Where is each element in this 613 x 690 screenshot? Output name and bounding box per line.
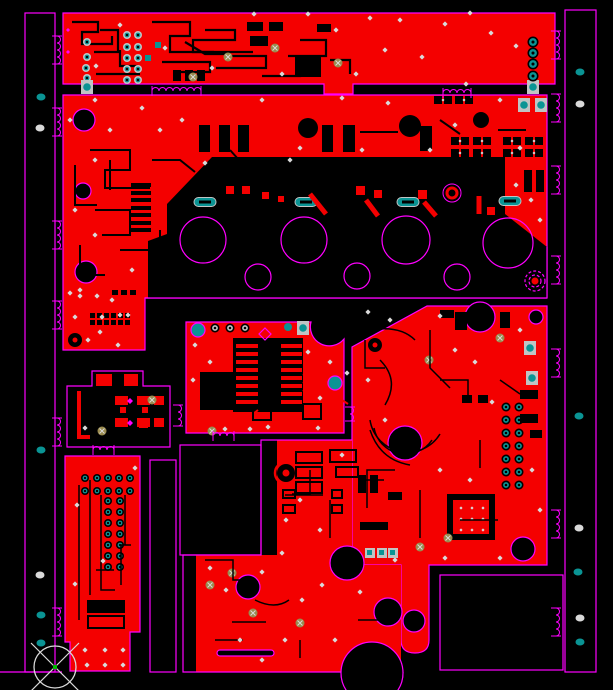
component — [370, 475, 378, 493]
through-hole-pad — [86, 56, 88, 58]
ic-pads — [176, 240, 196, 244]
resistor-footprint — [461, 137, 469, 145]
copper-pad — [142, 407, 148, 413]
resistor-footprint — [503, 149, 511, 157]
panel-tab-coil — [152, 88, 201, 91]
copper-pad — [374, 190, 382, 198]
ic-pads — [131, 221, 151, 225]
resistor-footprint — [451, 149, 459, 157]
fiducial-center — [532, 278, 539, 285]
mounting-hole — [73, 109, 95, 131]
through-hole-pad — [137, 57, 139, 59]
ic-pads — [131, 191, 151, 195]
plated-hole — [328, 376, 342, 390]
connector-pad — [129, 490, 131, 492]
ic-pin — [281, 392, 302, 396]
panel-tab-coil — [556, 31, 560, 59]
connector-pad — [119, 500, 121, 502]
panel-tab-coil — [556, 510, 560, 538]
smd-pad — [155, 42, 161, 48]
resistor-footprint — [473, 149, 481, 157]
through-hole-pad — [137, 79, 139, 81]
component — [90, 313, 95, 318]
connector-pad — [84, 477, 86, 479]
resistor-footprint — [455, 96, 463, 104]
component — [388, 492, 402, 500]
copper-pad — [120, 407, 126, 413]
smd-pad — [145, 55, 151, 61]
component — [399, 115, 421, 137]
pin1-pad — [529, 83, 537, 91]
hole — [388, 426, 422, 460]
via — [365, 309, 370, 314]
through-hole-pad — [86, 77, 88, 79]
via — [344, 370, 349, 375]
component — [130, 290, 136, 295]
rail-tooling-marks — [576, 639, 585, 646]
component — [238, 125, 249, 152]
copper-pad — [418, 190, 427, 199]
resistor-footprint — [525, 137, 533, 145]
ic-pads — [176, 233, 196, 237]
component — [199, 125, 210, 152]
resistor-footprint — [465, 96, 473, 104]
slot-pad — [300, 201, 312, 204]
routing-slot — [180, 445, 261, 555]
component — [197, 70, 205, 81]
connector-pad — [518, 432, 521, 435]
component — [520, 414, 538, 423]
component — [90, 320, 95, 325]
component — [440, 310, 454, 318]
rail-tooling-marks — [575, 525, 584, 532]
connector-pad — [520, 101, 528, 109]
component — [104, 320, 109, 325]
copper-pad — [242, 186, 250, 194]
copper-pad — [96, 374, 112, 386]
connector-pad — [505, 484, 508, 487]
ic-pin — [236, 400, 258, 404]
component — [360, 522, 388, 530]
slot-pad — [199, 201, 211, 204]
connector-pad — [518, 419, 521, 422]
mounting-hole — [75, 183, 91, 199]
ic-pin — [281, 384, 302, 388]
panel-tab-coil — [556, 166, 560, 194]
plated-hole — [191, 323, 205, 337]
component — [121, 290, 127, 295]
panel-tab-coil — [57, 301, 61, 329]
component — [455, 312, 467, 330]
component — [524, 170, 532, 192]
component — [520, 390, 538, 399]
ic-pin — [281, 360, 302, 364]
component — [473, 112, 489, 128]
ic-pads — [131, 183, 151, 187]
connector-pad — [107, 544, 109, 546]
connector-pad — [505, 445, 508, 448]
ic-pads — [336, 184, 352, 188]
copper-pad — [487, 207, 495, 215]
ic-pads — [336, 212, 352, 216]
component — [250, 36, 268, 46]
component — [295, 57, 321, 77]
connector-pad — [107, 555, 109, 557]
through-hole-pad — [531, 51, 534, 54]
ic-pin — [281, 344, 302, 348]
component — [500, 312, 510, 328]
component — [104, 313, 109, 318]
connector-pad — [505, 471, 508, 474]
panel-tab-coil — [57, 221, 61, 249]
ic-pads — [176, 247, 196, 251]
connector-pad — [107, 511, 109, 513]
resistor-footprint — [451, 137, 459, 145]
rail-tooling-marks — [576, 101, 585, 108]
smd-pad — [367, 550, 372, 555]
via — [387, 317, 392, 322]
component — [111, 313, 116, 318]
ic-pin — [236, 352, 258, 356]
edge-notch — [403, 610, 425, 632]
through-hole-pad — [126, 57, 128, 59]
ic-pads — [131, 206, 151, 210]
ic-pads — [131, 228, 151, 232]
through-hole-pad — [137, 46, 139, 48]
ic-body — [200, 372, 234, 410]
connector-pad — [518, 471, 521, 474]
ic-pin — [236, 344, 258, 348]
pin1-pad — [83, 83, 91, 91]
component — [298, 118, 318, 138]
rail-tooling-marks — [37, 447, 46, 454]
resistor-footprint — [525, 149, 533, 157]
through-hole-pad — [126, 79, 128, 81]
connector-pad — [107, 490, 109, 492]
component — [125, 320, 130, 325]
rail-tooling-marks — [36, 572, 45, 579]
connector-pad — [537, 101, 545, 109]
component — [111, 320, 116, 325]
rail-tooling-marks — [576, 615, 585, 622]
smd-pad — [390, 550, 395, 555]
panel-tab-coil — [556, 349, 560, 377]
connector-pad — [96, 477, 98, 479]
connector-pad — [518, 484, 521, 487]
pcb-editor-viewport — [0, 0, 613, 690]
routing-slot — [150, 460, 176, 672]
through-hole-pad — [244, 327, 247, 330]
copper-pad — [139, 420, 148, 428]
component — [112, 290, 118, 295]
connector-pad — [518, 406, 521, 409]
connector-pad — [119, 533, 121, 535]
connector-pad — [107, 566, 109, 568]
component — [322, 125, 333, 152]
connector-pad — [505, 406, 508, 409]
connector-pad — [118, 477, 120, 479]
panel-tab-coil — [57, 608, 61, 636]
copper-pad — [115, 396, 128, 405]
rail-tooling-marks — [576, 69, 585, 76]
through-hole-pad — [531, 40, 534, 43]
panel-tab-coil — [178, 405, 182, 426]
ic-pin — [236, 376, 258, 380]
ic-pads — [336, 205, 352, 209]
ic-pads — [336, 170, 352, 174]
slot-pad — [504, 200, 516, 203]
component — [478, 395, 488, 403]
slot-pad — [217, 650, 274, 656]
copper-pad — [124, 374, 138, 386]
pin1-pad — [528, 374, 536, 382]
connector-pad — [505, 419, 508, 422]
hole-pad — [283, 470, 290, 477]
ic-pads — [336, 219, 352, 223]
connector-pad — [96, 490, 98, 492]
panel-tab-coil — [556, 94, 560, 122]
copper-pad — [262, 192, 269, 199]
connector-pad — [119, 511, 121, 513]
through-hole-pad — [137, 68, 139, 70]
through-hole-pad — [85, 67, 87, 69]
component — [97, 320, 102, 325]
resistor-footprint — [444, 96, 452, 104]
smd-pad — [284, 323, 292, 331]
copper-pad — [356, 186, 365, 195]
hole — [529, 310, 543, 324]
pcb-canvas[interactable] — [0, 0, 613, 690]
ic-pin — [281, 352, 302, 356]
ic-pin — [281, 400, 302, 404]
ic-pads — [131, 198, 151, 202]
rail-tooling-marks — [37, 640, 46, 647]
connector-pad — [118, 490, 120, 492]
smd-pad — [379, 550, 384, 555]
ic-pads — [336, 198, 352, 202]
connector-pad — [505, 458, 508, 461]
origin-point — [53, 665, 57, 669]
through-hole-pad — [214, 327, 217, 330]
panel-tab-coil — [57, 36, 61, 64]
rail-tooling-marks — [574, 569, 583, 576]
panel-tab-coil — [57, 108, 61, 136]
component — [530, 430, 542, 438]
rail-tooling-marks — [575, 413, 584, 420]
resistor-footprint — [483, 137, 491, 145]
component — [317, 24, 331, 32]
connector-pad — [129, 477, 131, 479]
pin1-pad — [526, 344, 534, 352]
connector-pad — [518, 445, 521, 448]
connector-pad — [107, 533, 109, 535]
resistor-footprint — [535, 137, 543, 145]
component — [358, 475, 366, 493]
ic-pin — [236, 384, 258, 388]
resistor-footprint — [535, 149, 543, 157]
connector-pad — [505, 432, 508, 435]
resistor-footprint — [461, 149, 469, 157]
component — [219, 125, 230, 152]
connector-pad — [107, 522, 109, 524]
component — [173, 70, 181, 81]
through-hole-pad — [531, 74, 534, 77]
component — [118, 320, 123, 325]
ic-pin — [281, 368, 302, 372]
rail-tooling-marks — [36, 125, 45, 132]
component — [247, 22, 263, 31]
through-hole-pad — [531, 62, 534, 65]
rail-tooling-marks — [37, 612, 46, 619]
hole — [374, 598, 402, 626]
copper-pad — [226, 186, 234, 194]
hole-pad — [73, 338, 78, 343]
through-hole-pad — [229, 327, 232, 330]
resistor-footprint — [473, 137, 481, 145]
slot-pad — [402, 201, 414, 204]
ic-pads — [176, 226, 196, 230]
resistor-footprint — [434, 96, 442, 104]
connector-pad — [84, 490, 86, 492]
ic-pads — [336, 177, 352, 181]
resistor-footprint — [503, 137, 511, 145]
hole — [330, 546, 364, 580]
component — [462, 395, 472, 403]
ic-pad — [453, 500, 489, 534]
component — [536, 170, 544, 192]
ic-pin — [236, 392, 258, 396]
bottom-right-box — [440, 575, 563, 670]
connector-pad — [107, 477, 109, 479]
resistor-footprint — [513, 137, 521, 145]
ic-pin — [281, 376, 302, 380]
mounting-hole — [75, 261, 97, 283]
pin1-pad — [299, 324, 307, 332]
rail-tooling-marks — [37, 94, 46, 101]
panel-tab-coil — [443, 90, 471, 93]
connector-pad — [107, 500, 109, 502]
resistor-footprint — [483, 149, 491, 157]
through-hole-pad — [137, 34, 139, 36]
ic-pads — [131, 213, 151, 217]
through-hole-pad — [86, 41, 88, 43]
copper-pad — [154, 418, 164, 427]
component — [343, 125, 355, 152]
panel-tab-coil — [57, 418, 61, 446]
ic-pin — [236, 368, 258, 372]
hole — [236, 575, 260, 599]
copper-pad — [278, 196, 284, 202]
ic-pads — [336, 191, 352, 195]
component — [87, 600, 125, 613]
edge-notch — [511, 537, 535, 561]
component — [420, 126, 432, 151]
ic-pin — [236, 360, 258, 364]
through-hole-pad — [126, 68, 128, 70]
through-hole-pad — [126, 34, 128, 36]
hole-pad — [373, 343, 378, 348]
connector-pad — [119, 522, 121, 524]
panel-tab-coil — [556, 256, 560, 284]
component — [269, 22, 283, 31]
copper-pad — [115, 418, 128, 427]
edge-notch — [465, 302, 495, 332]
connector-pad — [518, 458, 521, 461]
through-hole-pad — [126, 46, 128, 48]
